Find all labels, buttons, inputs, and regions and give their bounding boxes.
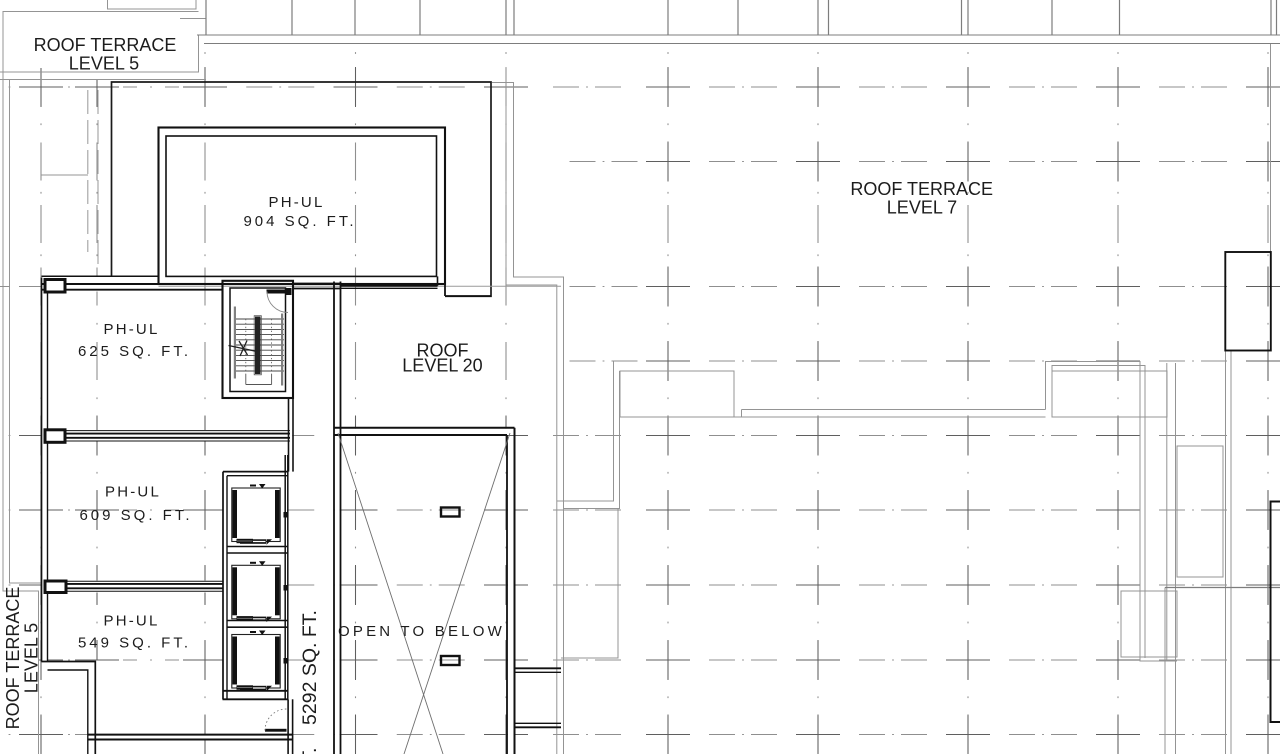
svg-text:ROOF TERRACE: ROOF TERRACE <box>850 179 993 199</box>
svg-text:PH-UL: PH-UL <box>268 194 324 211</box>
svg-text:609 SQ. FT.: 609 SQ. FT. <box>79 507 192 524</box>
svg-text:PH-UL: PH-UL <box>103 321 159 338</box>
svg-text:ROOF TERRACE: ROOF TERRACE <box>34 35 177 55</box>
svg-text:LEVEL 7: LEVEL 7 <box>887 198 957 218</box>
svg-text:ROOF TERRACE: ROOF TERRACE <box>3 587 23 730</box>
svg-text:625 SQ. FT.: 625 SQ. FT. <box>78 343 191 360</box>
svg-text:LEVEL 5: LEVEL 5 <box>69 54 139 74</box>
svg-text:LEVEL 20: LEVEL 20 <box>402 356 482 376</box>
svg-text:LEVEL 5: LEVEL 5 <box>22 623 42 693</box>
svg-text:PH-UL: PH-UL <box>103 613 159 630</box>
svg-text:PH-UL: PH-UL <box>105 484 161 501</box>
svg-text:549 SQ. FT.: 549 SQ. FT. <box>78 635 191 652</box>
svg-text:5292 SQ. FT.: 5292 SQ. FT. <box>299 748 321 754</box>
svg-text:5292 SQ. FT.: 5292 SQ. FT. <box>299 610 321 725</box>
svg-text:OPEN TO BELOW: OPEN TO BELOW <box>338 623 505 640</box>
svg-text:904 SQ. FT.: 904 SQ. FT. <box>243 213 356 230</box>
